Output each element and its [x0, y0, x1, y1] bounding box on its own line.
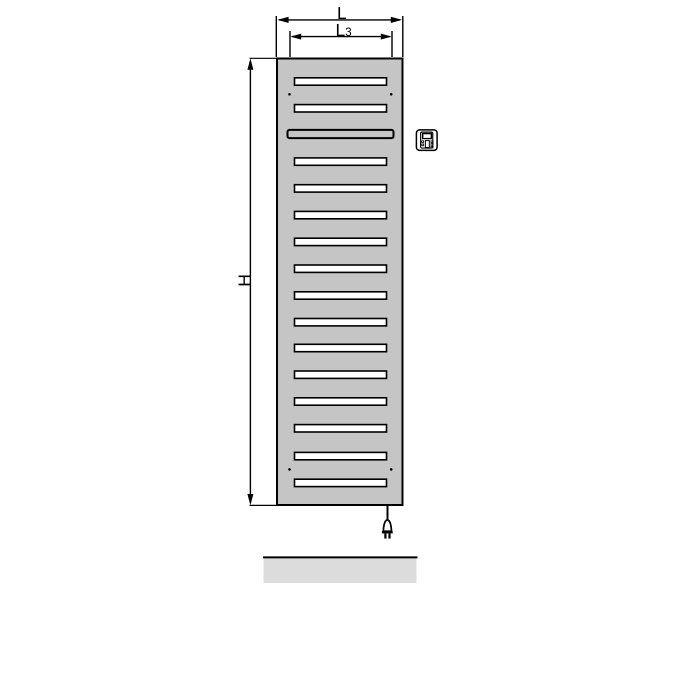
svg-text:H: H: [234, 274, 254, 287]
